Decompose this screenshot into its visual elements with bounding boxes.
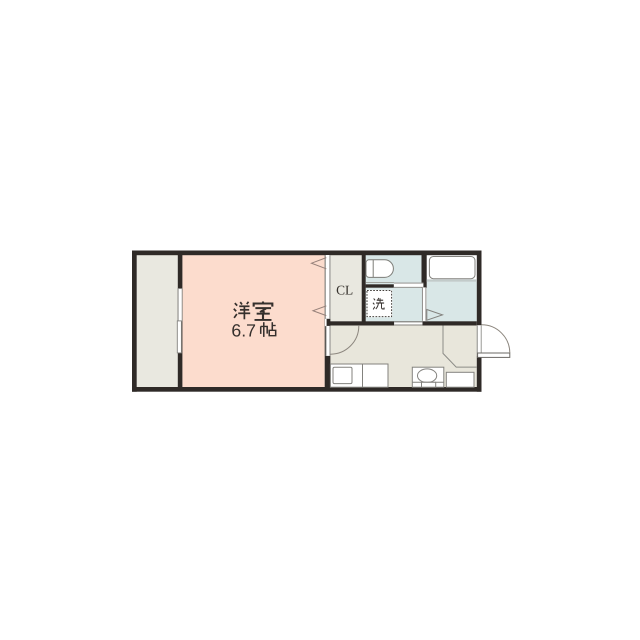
svg-text:6.7: 6.7 [231,320,256,340]
svg-text:CL: CL [336,283,353,298]
